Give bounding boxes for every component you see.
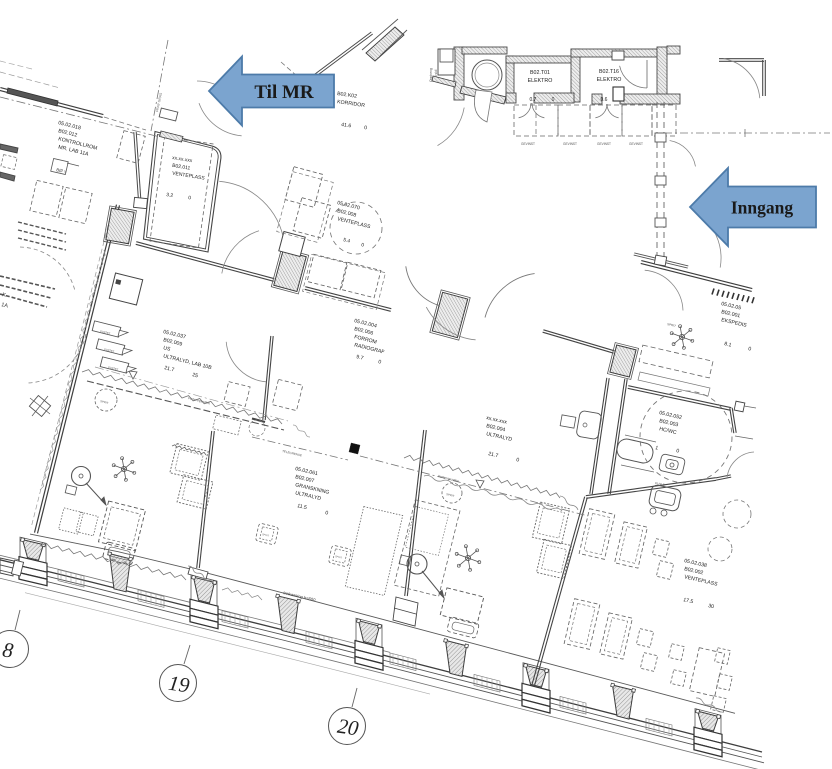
svg-text:Til MR: Til MR xyxy=(254,82,314,103)
svg-text:Inngang: Inngang xyxy=(731,197,794,217)
svg-text:20: 20 xyxy=(336,714,361,741)
svg-text:19: 19 xyxy=(167,671,192,698)
svg-text:B02.T01: B02.T01 xyxy=(530,70,550,76)
svg-text:0.7: 0.7 xyxy=(530,97,537,103)
svg-text:0.6: 0.6 xyxy=(601,97,608,103)
svg-text:GEVINST: GEVINST xyxy=(629,142,643,146)
svg-text:ELEKTRO: ELEKTRO xyxy=(528,78,553,84)
svg-text:GEVINST: GEVINST xyxy=(563,142,577,146)
svg-text:3.2: 3.2 xyxy=(166,192,174,199)
svg-text:B02.T16: B02.T16 xyxy=(599,69,619,75)
svg-text:0: 0 xyxy=(552,97,555,103)
svg-text:ELEKTRO: ELEKTRO xyxy=(597,77,622,83)
svg-text:GEVINST: GEVINST xyxy=(521,142,535,146)
svg-text:GEVINST: GEVINST xyxy=(597,142,611,146)
